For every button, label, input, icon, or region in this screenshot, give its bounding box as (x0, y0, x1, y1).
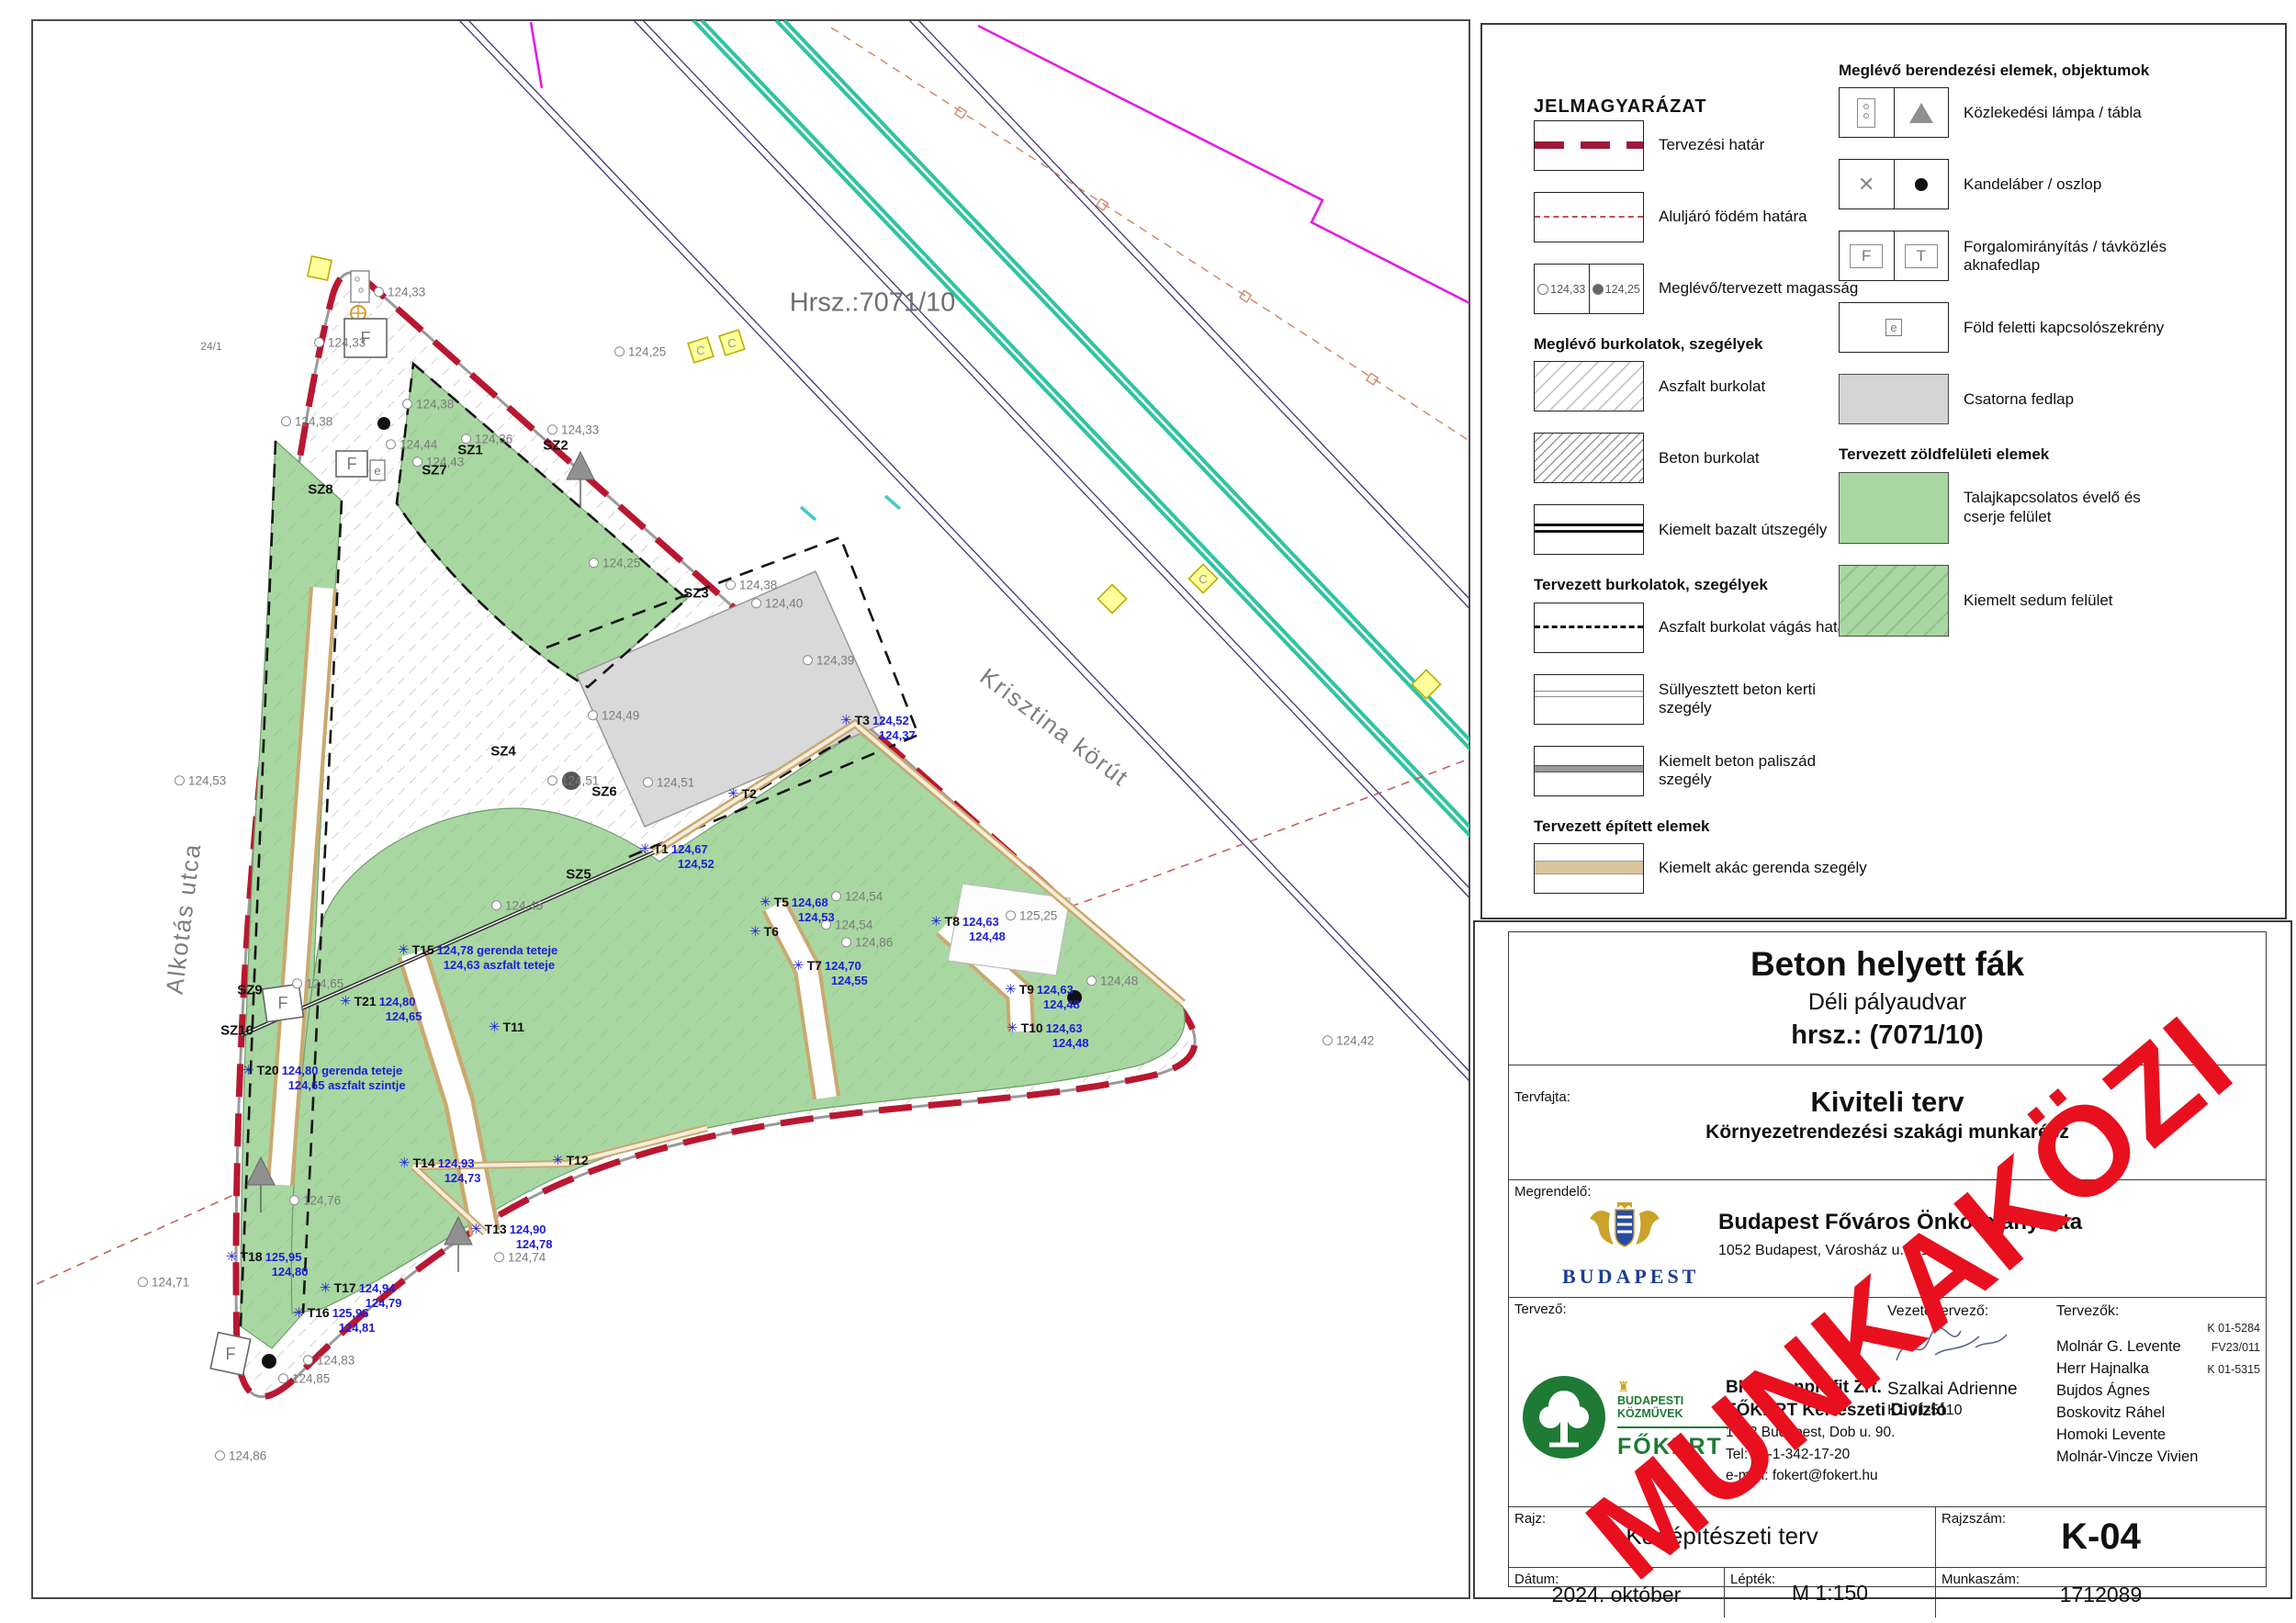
swatch-kandelaber: ✕ (1839, 159, 1949, 209)
meta-row: Dátum: 2024. október Lépték: M 1:150 Mun… (1509, 1568, 2266, 1617)
designer-name: Molnár G. Levente (2056, 1336, 2181, 1358)
swatch-basalt-curb (1534, 504, 1644, 555)
tervezo-label: Tervező: (1514, 1302, 1567, 1317)
legend-panel: JELMAGYARÁZAT Tervezési határ Aluljáró f… (1480, 23, 2287, 919)
swatch-channel-cover (1839, 374, 1949, 424)
datum-label: Dátum: (1514, 1572, 1559, 1587)
legend-item: Beton burkolat (1534, 433, 1883, 483)
legend-item: Kiemelt bazalt útszegély (1534, 504, 1883, 555)
site-plan-drawing: FFFFeCCC Alkotás utca Krisztina körút Hr… (0, 0, 1479, 1623)
utility-marker-letter: C (1199, 572, 1207, 586)
designer-name: Homoki Levente (2056, 1425, 2166, 1447)
swatch-sedum-green (1839, 565, 1949, 637)
f-manhole-letter: F (226, 1345, 236, 1363)
legend-item-label: Kiemelt bazalt útszegély (1659, 521, 1827, 539)
swatch-switchbox: e (1839, 302, 1949, 353)
legend-item-label: Kandeláber / oszlop (1964, 175, 2101, 194)
legend-column-left: Tervezési határ Aluljáró födém határa 12… (1534, 120, 1883, 915)
megrendelo-label: Megrendelő: (1514, 1184, 1591, 1200)
swatch-manhole: F T (1839, 231, 1949, 281)
rajz-label: Rajz: (1514, 1511, 1546, 1527)
legend-item: Közlekedési lámpa / tábla (1839, 87, 2270, 138)
leptek-cell: Lépték: M 1:150 (1725, 1568, 1936, 1617)
legend-item: ✕ Kandeláber / oszlop (1839, 159, 2270, 209)
utility-marker (308, 256, 332, 280)
traffic-lamp-icon (1857, 98, 1875, 128)
legend-item: Kiemelt beton paliszád szegély (1534, 746, 1883, 796)
legend-item-label: Tervezési határ (1659, 136, 1764, 154)
legend-item: Kiemelt sedum felület (1839, 565, 2270, 637)
designers-list: K 01-5284Molnár G. LeventeFV23/011Herr H… (2056, 1320, 2260, 1469)
traffic-sign-icon (1909, 103, 1933, 123)
tervfajta-label: Tervfajta: (1514, 1089, 1570, 1105)
tervezok-label: Tervezők: (2056, 1303, 2260, 1320)
legend-item-label: Aluljáró födém határa (1659, 208, 1807, 226)
legend-item-label: Forgalomirányítás / távközlés aknafedlap (1964, 238, 2175, 276)
swatch-elevation: 124,33 124,25 (1534, 264, 1644, 314)
legend-item: Csatorna fedlap (1839, 374, 2270, 424)
legend-item: Aszfalt burkolat vágás határa (1534, 603, 1883, 653)
designer-code: K 01-5315 (2207, 1361, 2260, 1378)
pole-icon (1915, 178, 1928, 191)
switchbox-letter: e (374, 464, 380, 478)
designer-row-item: K 01-5284 (2056, 1320, 2260, 1336)
legend-item-label: Aszfalt burkolat (1659, 378, 1765, 396)
legend-item: Tervezési határ (1534, 120, 1883, 171)
utility-marker-letter: C (727, 336, 736, 350)
rajzszam-label: Rajzszám: (1941, 1511, 2006, 1527)
project-title: Beton helyett fák (1509, 945, 2266, 984)
legend-section-header: Meglévő berendezési elemek, objektumok (1839, 62, 2270, 80)
utility-marker-letter: C (696, 344, 704, 357)
swatch-traffic-lamp (1839, 87, 1949, 138)
legend-item-label: Kiemelt beton paliszád szegély (1659, 752, 1870, 790)
f-manhole-letter: F (361, 329, 371, 347)
switchbox-icon: e (1885, 319, 1901, 336)
candelabra-icon: ✕ (1858, 175, 1874, 195)
munkaszam-label: Munkaszám: (1941, 1572, 2020, 1587)
fokert-logo (1520, 1373, 1608, 1461)
f-manhole-letter: F (278, 994, 288, 1012)
leptek-label: Lépték: (1730, 1572, 1775, 1587)
legend-item-label: Kiemelt akác gerenda szegély (1659, 859, 1867, 877)
utility-pad (948, 884, 1070, 975)
f-manhole-icon: F (1850, 244, 1883, 268)
legend-item-label: Kiemelt sedum felület (1964, 592, 2113, 610)
legend-section-header: Tervezett burkolatok, szegélyek (1534, 576, 1883, 594)
designer-row-item: Bujdos Ágnes (2056, 1381, 2260, 1403)
swatch-timber-edge (1534, 843, 1644, 894)
plan-sheet: FFFFeCCC Alkotás utca Krisztina körút Hr… (0, 0, 2296, 1623)
designer-name: Bujdos Ágnes (2056, 1381, 2150, 1403)
legend-item: F T Forgalomirányítás / távközlés aknafe… (1839, 231, 2270, 281)
designers-column: Tervezők: K 01-5284Molnár G. LeventeFV23… (2056, 1303, 2260, 1469)
rajzszam-cell: Rajzszám: K-04 (1936, 1507, 2266, 1567)
legend-item: 124,33 124,25 Meglévő/tervezett magasság (1534, 264, 1883, 314)
designer-row-item: Boskovitz Ráhel (2056, 1403, 2260, 1425)
designer-row-item: Homoki Levente (2056, 1425, 2260, 1447)
legend-item: Talajkapcsolatos évelő és cserje felület (1839, 472, 2270, 544)
swatch-palisade-curb (1534, 746, 1644, 796)
f-manhole-letter: F (347, 455, 357, 473)
bkm-crest-icon: ♜ (1617, 1380, 1629, 1395)
legend-item: Aluljáró födém határa (1534, 192, 1883, 242)
designer-code: K 01-5284 (2207, 1320, 2260, 1336)
designer-row-item: Molnár-Vincze Vivien (2056, 1447, 2260, 1469)
legend-item-label: Süllyesztett beton kerti szegély (1659, 681, 1870, 718)
swatch-perennial-green (1839, 472, 1949, 544)
datum-cell: Dátum: 2024. október (1509, 1568, 1725, 1617)
swatch-asphalt-cut (1534, 603, 1644, 653)
legend-item-label: Beton burkolat (1659, 449, 1760, 468)
budapest-wordmark: BUDAPEST (1562, 1265, 1699, 1289)
designer-row-item: Molnár G. LeventeFV23/011 (2056, 1336, 2260, 1358)
designer-row-item: Herr HajnalkaK 01-5315 (2056, 1358, 2260, 1381)
legend-item-label: Közlekedési lámpa / tábla (1964, 104, 2142, 122)
legend-section-header: Tervezett zöldfelületi elemek (1839, 445, 2270, 464)
legend-item: Aszfalt burkolat (1534, 361, 1883, 411)
designer-name: Herr Hajnalka (2056, 1358, 2149, 1381)
legend-section-header: Tervezett épített elemek (1534, 817, 1883, 836)
legend-item-label: Föld feletti kapcsolószekrény (1964, 319, 2164, 337)
legend-column-right: Meglévő berendezési elemek, objektumok K… (1839, 62, 2270, 658)
legend-item-label: Meglévő/tervezett magasság (1659, 279, 1858, 298)
swatch-underpass-boundary (1534, 192, 1644, 242)
designer-name: Molnár-Vincze Vivien (2056, 1447, 2198, 1469)
budapest-coat-of-arms (1582, 1200, 1667, 1263)
designer-code: FV23/011 (2212, 1339, 2260, 1356)
legend-item-label: Aszfalt burkolat vágás határa (1659, 618, 1860, 637)
legend-item: e Föld feletti kapcsolószekrény (1839, 302, 2270, 353)
legend-item: Süllyesztett beton kerti szegély (1534, 674, 1883, 725)
swatch-concrete (1534, 433, 1644, 483)
legend-title: JELMAGYARÁZAT (1534, 96, 1707, 118)
site-plan-svg: FFFFeCCC (0, 0, 1479, 1623)
legend-item-label: Csatorna fedlap (1964, 390, 2074, 409)
swatch-design-boundary (1534, 120, 1644, 171)
swatch-sunken-curb (1534, 674, 1644, 725)
vezeto-id: K1 01-5110 (1887, 1403, 2053, 1419)
munkaszam-cell: Munkaszám: 1712089 (1936, 1568, 2266, 1617)
legend-item: Kiemelt akác gerenda szegély (1534, 843, 1883, 894)
t-manhole-icon: T (1905, 244, 1938, 268)
swatch-asphalt (1534, 361, 1644, 411)
legend-section-header: Meglévő burkolatok, szegélyek (1534, 335, 1883, 354)
designer-name: Boskovitz Ráhel (2056, 1403, 2165, 1425)
legend-item-label: Talajkapcsolatos évelő és cserje felület (1964, 489, 2175, 526)
